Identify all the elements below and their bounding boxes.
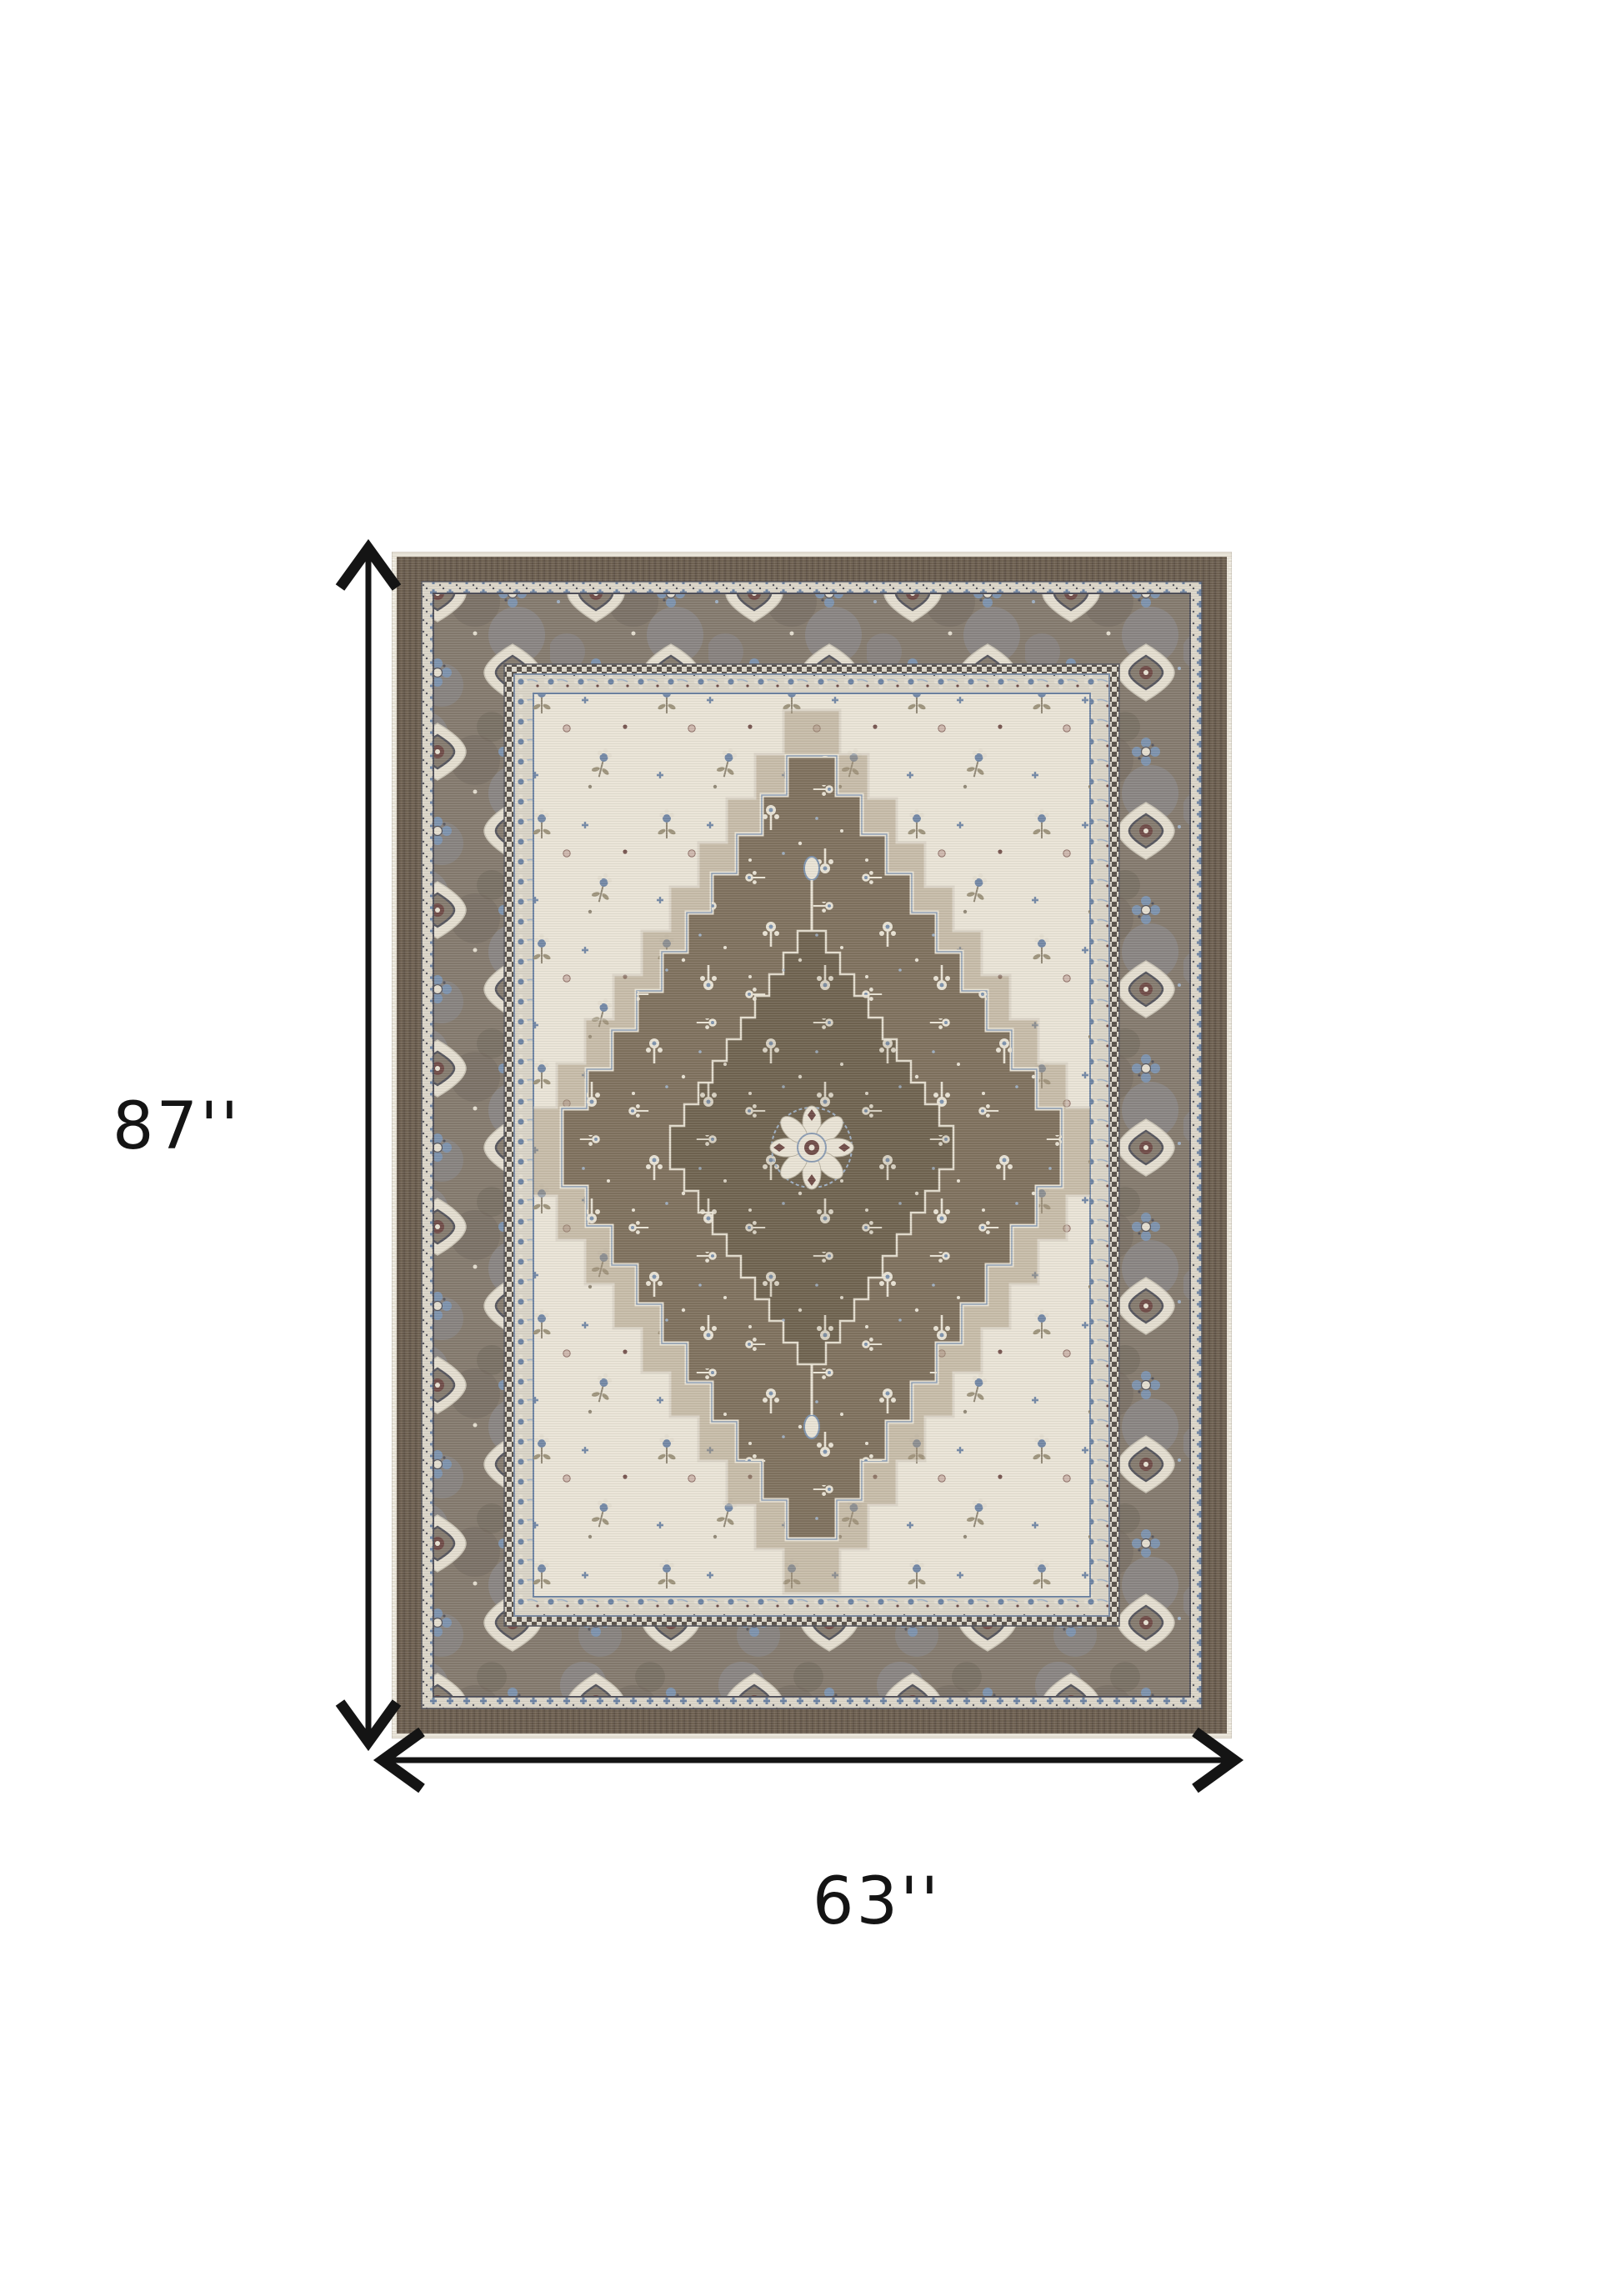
vertical-dimension-arrow (340, 548, 397, 1742)
horizontal-dimension-arrow (383, 1732, 1234, 1788)
width-dimension-label: 63'' (813, 1864, 941, 1939)
product-dimension-diagram: { "page": { "background_color": "#ffffff… (0, 0, 1621, 2296)
weave-texture-overlay (392, 552, 1232, 1738)
rug-image (392, 552, 1232, 1738)
height-dimension-label: 87'' (113, 1089, 241, 1164)
